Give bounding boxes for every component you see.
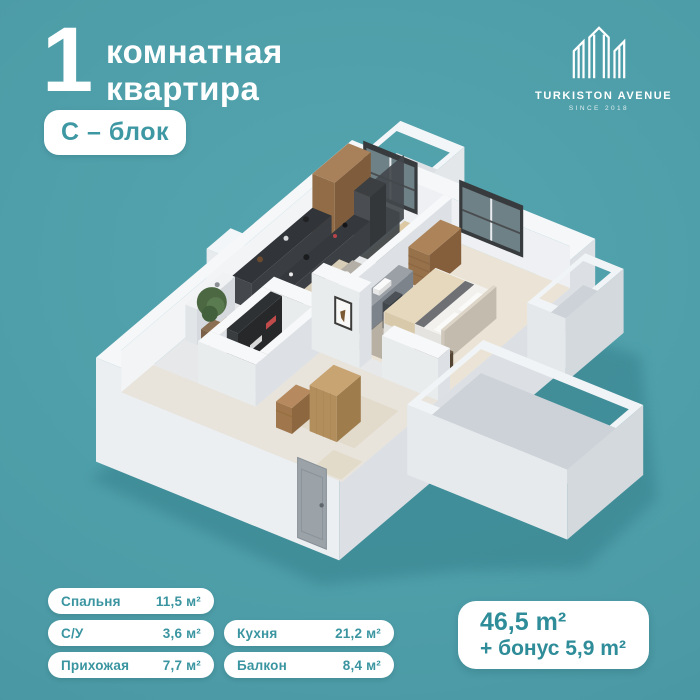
room-label: Спальня <box>61 594 121 609</box>
room-area: 3,6 м² <box>163 626 201 641</box>
title-line-2: квартира <box>106 70 283 107</box>
room-pill-balcony: Балкон 8,4 м² <box>224 652 394 678</box>
room-count-number: 1 <box>42 14 93 106</box>
room-area: 11,5 м² <box>156 594 201 609</box>
room-label: С/У <box>61 626 84 641</box>
brand-name: TURKISTON AVENUE <box>535 90 663 102</box>
room-label: Прихожая <box>61 658 129 673</box>
brand-since: SINCE 2018 <box>535 105 663 112</box>
poster-title: комнатная квартира <box>106 33 283 107</box>
room-label: Кухня <box>237 626 277 641</box>
bonus-area-value: + бонус 5,9 m² <box>480 636 649 662</box>
apartment-poster: 1 комнатная квартира С – блок TURKISTON … <box>0 0 700 700</box>
room-area: 7,7 м² <box>163 658 201 673</box>
room-pill-bedroom: Спальня 11,5 м² <box>48 588 214 614</box>
title-line-1: комнатная <box>106 33 283 70</box>
total-area-card: 46,5 m² + бонус 5,9 m² <box>458 601 649 669</box>
room-pill-kitchen: Кухня 21,2 м² <box>224 620 394 646</box>
room-pill-bathroom: С/У 3,6 м² <box>48 620 214 646</box>
block-badge-label: С – блок <box>61 118 169 147</box>
building-monogram-icon <box>564 22 634 84</box>
room-area: 21,2 м² <box>335 626 381 641</box>
room-label: Балкон <box>237 658 287 673</box>
room-area: 8,4 м² <box>343 658 381 673</box>
room-pill-hallway: Прихожая 7,7 м² <box>48 652 214 678</box>
block-badge: С – блок <box>44 110 186 155</box>
total-area-value: 46,5 m² <box>480 608 649 636</box>
brand-logo: TURKISTON AVENUE SINCE 2018 <box>535 22 663 112</box>
